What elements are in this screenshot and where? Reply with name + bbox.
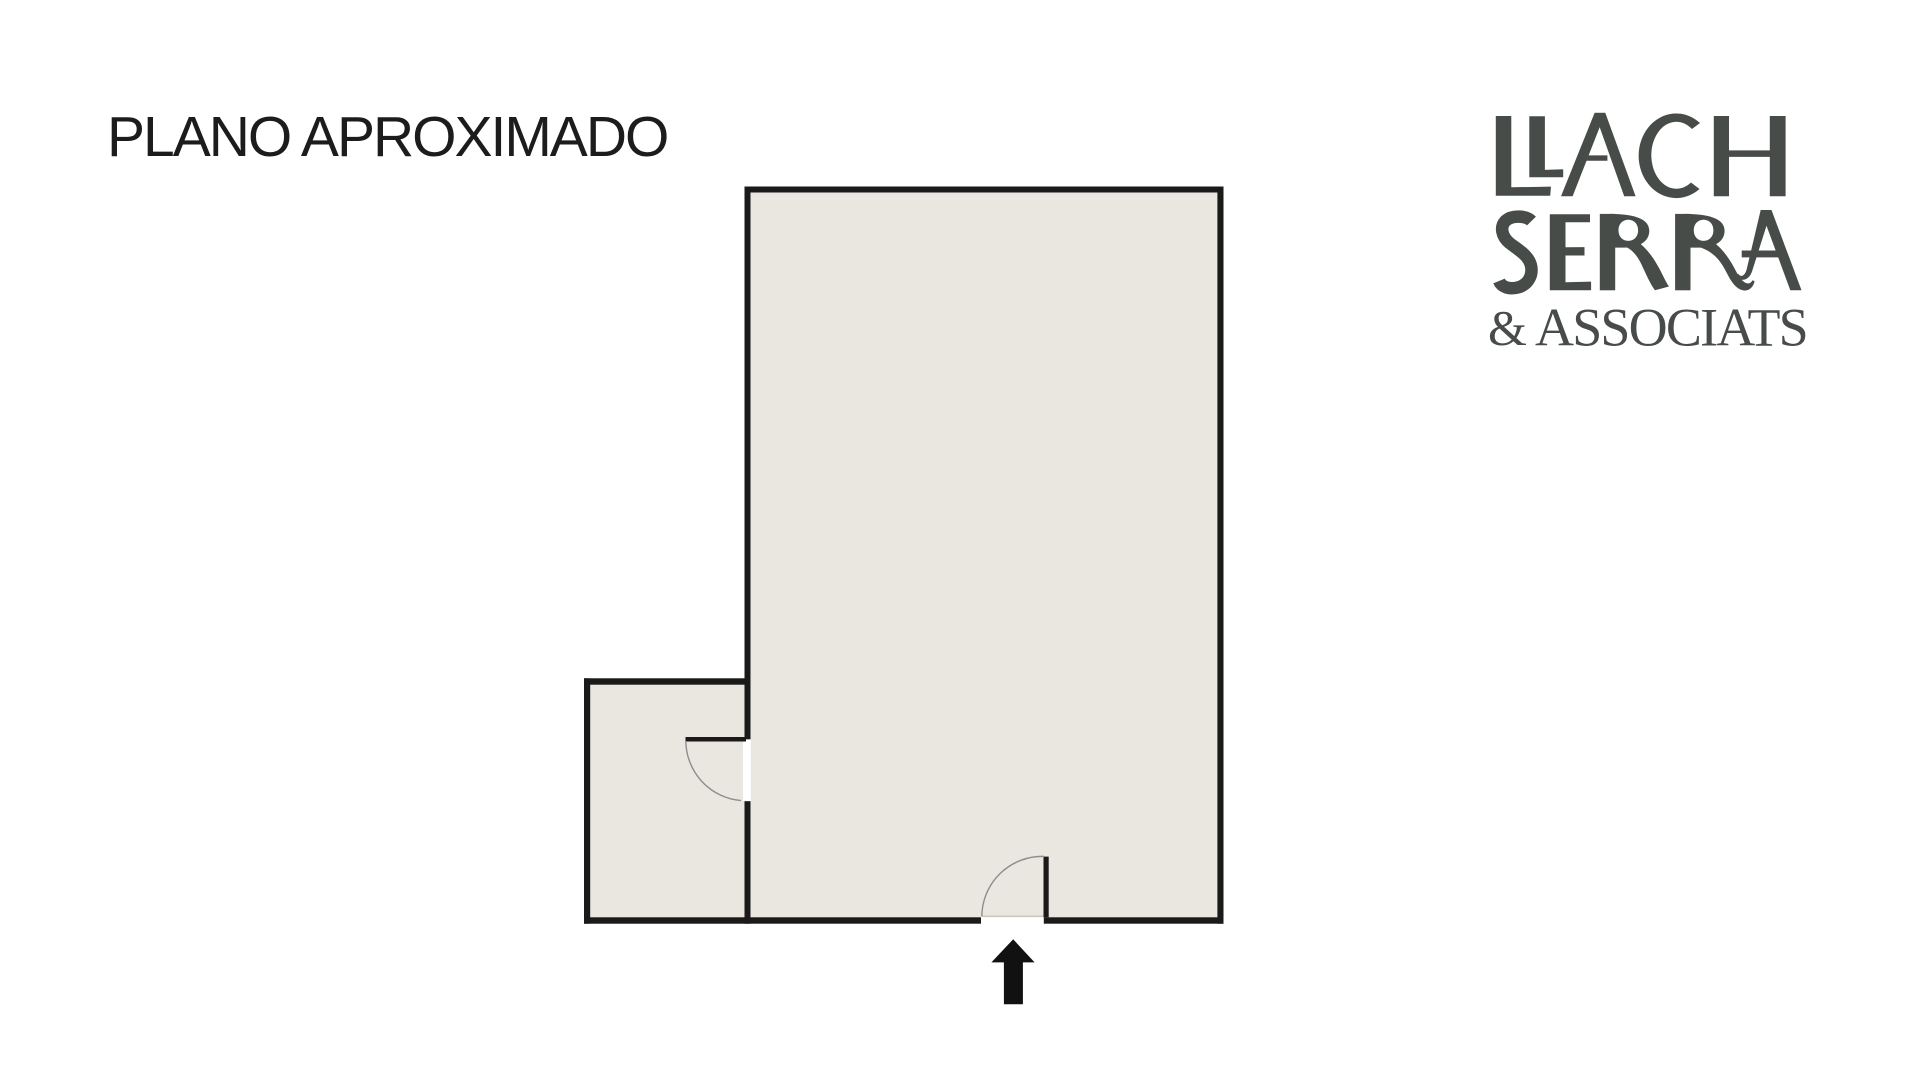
svg-text:ASSOCIATS: ASSOCIATS <box>1535 298 1807 358</box>
svg-text:&: & <box>1488 300 1527 356</box>
